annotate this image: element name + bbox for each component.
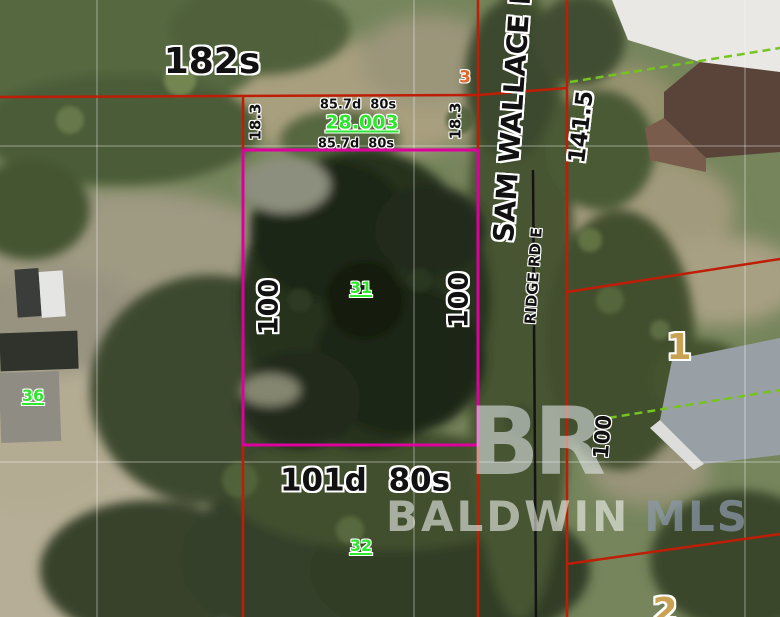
driveway-left: [0, 371, 61, 443]
parcel-interior-trees: [240, 150, 490, 450]
building-left-dark-roof: [0, 331, 79, 372]
aerial-imagery-layer: [0, 0, 780, 617]
parcel-map-canvas[interactable]: BR BALDWIN MLS 182s 85.7d 80s 28.003 85.…: [0, 0, 780, 617]
shed: [14, 266, 65, 319]
